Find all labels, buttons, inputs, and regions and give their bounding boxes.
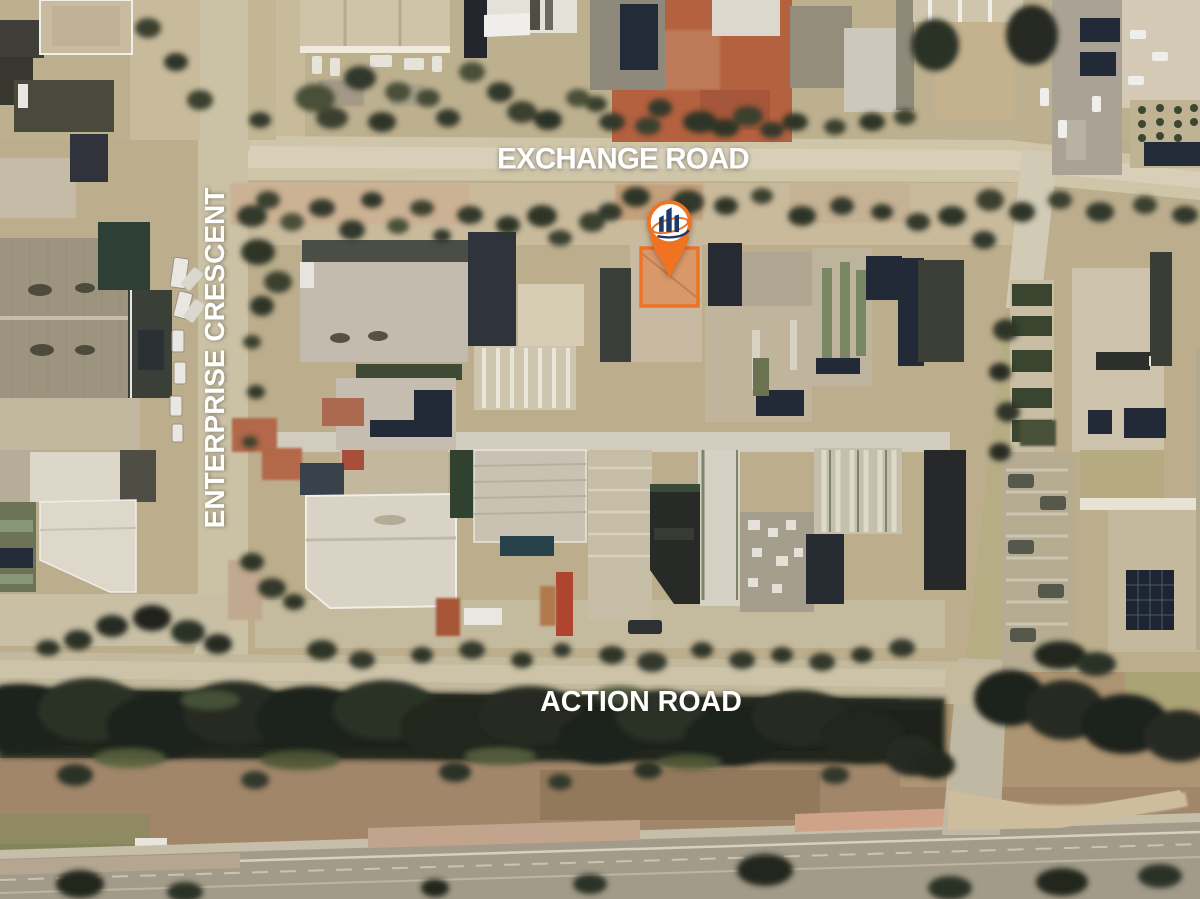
svg-text:ACTION ROAD: ACTION ROAD bbox=[540, 686, 742, 718]
svg-text:EXCHANGE ROAD: EXCHANGE ROAD bbox=[497, 143, 749, 176]
svg-text:ENTERPRISE CRESCENT: ENTERPRISE CRESCENT bbox=[199, 188, 230, 529]
